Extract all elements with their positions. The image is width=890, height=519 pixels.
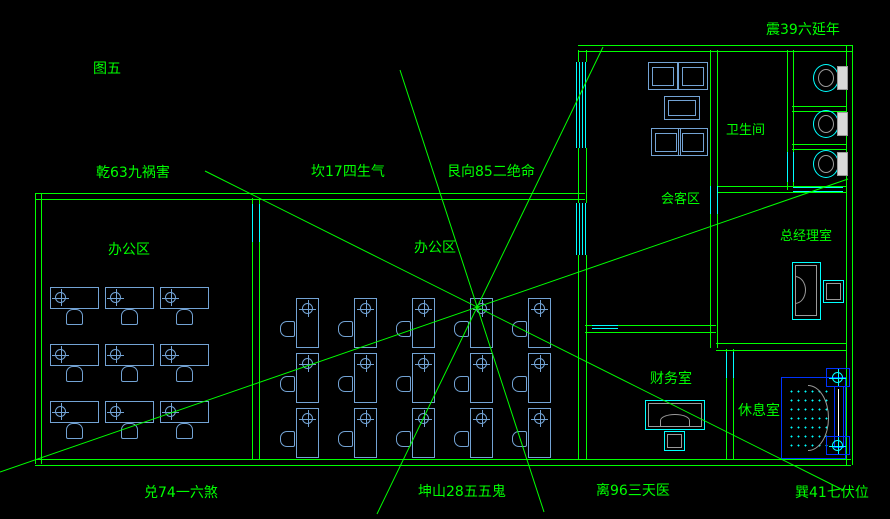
workstation-crosshair-icon: [302, 358, 313, 369]
workstation-crosshair-icon: [302, 413, 313, 424]
office-chair: [121, 423, 138, 439]
desk: [105, 344, 154, 366]
workstation-crosshair-icon: [418, 358, 429, 369]
workstation-crosshair-icon: [534, 358, 545, 369]
workstation-crosshair-icon: [360, 413, 371, 424]
wall-right-outer: [846, 45, 853, 465]
sofa-cushion: [682, 67, 704, 86]
window-meeting-bottom: [592, 325, 618, 331]
floorplan-canvas[interactable]: 图五 震39六延年 乾63九祸害 坎17四生气 艮向85二绝命 兑74一六煞 坤…: [0, 0, 890, 519]
plumbing-symbol-bottom: [826, 436, 850, 455]
direction-label-zhen: 震39六延年: [766, 21, 840, 39]
office-chair: [176, 423, 193, 439]
desk: [470, 298, 493, 348]
workstation-crosshair-icon: [302, 303, 313, 314]
wall-bottom-outer: [35, 459, 851, 466]
office-chair: [66, 423, 83, 439]
direction-label-kun: 坤山28五五鬼: [418, 483, 506, 501]
direction-label-li: 离96三天医: [596, 482, 670, 500]
room-label-meeting: 会客区: [661, 191, 700, 209]
office-chair: [512, 431, 527, 447]
workstation-crosshair-icon: [418, 303, 429, 314]
window-bathroom-bottom: [793, 187, 843, 192]
workstation-crosshair-icon: [360, 358, 371, 369]
office-chair: [66, 366, 83, 382]
office-chair: [121, 366, 138, 382]
gm-chair-seat: [826, 283, 841, 300]
sofa-cushion: [655, 133, 677, 152]
room-label-lounge: 休息室: [738, 402, 780, 420]
wall-left-outer: [35, 193, 42, 464]
toilet-tank: [837, 112, 848, 136]
desk: [296, 408, 319, 458]
room-label-office-left: 办公区: [108, 241, 150, 259]
direction-rays: [0, 0, 890, 519]
desk: [528, 353, 551, 403]
desk: [160, 287, 209, 309]
plumbing-symbol-top: [826, 368, 850, 387]
desk: [354, 353, 377, 403]
desk: [528, 298, 551, 348]
desk: [470, 353, 493, 403]
office-chair: [66, 309, 83, 325]
wall-stall-divider-2: [792, 144, 846, 150]
window-hall-divider: [576, 203, 587, 255]
workstation-crosshair-icon: [165, 349, 176, 360]
office-chair: [454, 376, 469, 392]
finance-chair-seat: [667, 434, 682, 448]
office-chair: [338, 376, 353, 392]
desk: [50, 287, 99, 309]
desk: [528, 408, 551, 458]
coffee-table: [664, 96, 700, 120]
office-chair: [280, 431, 295, 447]
direction-label-dui: 兑74一六煞: [144, 484, 218, 502]
gm-desk: [792, 262, 821, 320]
workstation-crosshair-icon: [55, 292, 66, 303]
office-chair: [280, 376, 295, 392]
desk: [354, 408, 377, 458]
room-label-finance: 财务室: [650, 370, 692, 388]
workstation-crosshair-icon: [55, 406, 66, 417]
workstation-crosshair-icon: [534, 303, 545, 314]
office-chair: [396, 321, 411, 337]
sofa-chair: [678, 128, 708, 156]
office-chair: [512, 321, 527, 337]
sofa-chair: [651, 128, 681, 156]
workstation-crosshair-icon: [418, 413, 429, 424]
room-label-office-main: 办公区: [414, 239, 456, 257]
toilet-tank: [837, 66, 848, 90]
direction-label-xun: 巽41七伏位: [795, 484, 869, 502]
workstation-crosshair-icon: [534, 413, 545, 424]
door-left-office: [252, 204, 260, 242]
direction-label-qian: 乾63九祸害: [96, 164, 170, 182]
desk: [160, 344, 209, 366]
office-chair: [396, 431, 411, 447]
toilet-tank: [837, 152, 848, 176]
sofa-chair: [648, 62, 678, 90]
office-chair: [454, 321, 469, 337]
crosshair-icon: [832, 372, 843, 383]
office-chair: [512, 376, 527, 392]
desk: [412, 298, 435, 348]
workstation-crosshair-icon: [110, 349, 121, 360]
coffee-table-top: [668, 100, 696, 116]
workstation-crosshair-icon: [476, 413, 487, 424]
workstation-crosshair-icon: [165, 406, 176, 417]
workstation-crosshair-icon: [110, 292, 121, 303]
sofa-cushion: [652, 67, 674, 86]
workstation-crosshair-icon: [110, 406, 121, 417]
desk: [50, 344, 99, 366]
office-chair: [338, 321, 353, 337]
figure-label: 图五: [93, 60, 121, 78]
desk: [296, 353, 319, 403]
desk: [105, 287, 154, 309]
room-label-bathroom: 卫生间: [726, 122, 765, 140]
workstation-crosshair-icon: [360, 303, 371, 314]
door-lounge: [726, 352, 734, 378]
crosshair-icon: [832, 440, 843, 451]
toilet-seat: [818, 155, 834, 173]
door-gm-office: [710, 186, 718, 214]
desk: [50, 401, 99, 423]
desk: [160, 401, 209, 423]
office-chair: [396, 376, 411, 392]
window-meeting-left: [576, 62, 587, 148]
desk: [412, 353, 435, 403]
toilet-seat: [818, 69, 834, 87]
office-chair: [338, 431, 353, 447]
workstation-crosshair-icon: [476, 303, 487, 314]
door-bathroom: [787, 152, 794, 182]
finance-desk: [645, 400, 705, 430]
office-chair: [280, 321, 295, 337]
wall-top-main: [35, 193, 585, 200]
office-chair: [176, 309, 193, 325]
sofa-chair: [678, 62, 708, 90]
finance-chair: [664, 431, 685, 451]
workstation-crosshair-icon: [55, 349, 66, 360]
office-chair: [454, 431, 469, 447]
sofa-cushion: [682, 133, 704, 152]
desk: [470, 408, 493, 458]
desk: [296, 298, 319, 348]
office-chair: [176, 366, 193, 382]
finance-desk-arc: [660, 414, 690, 427]
office-chair: [121, 309, 138, 325]
gm-chair: [823, 280, 844, 303]
toilet-seat: [818, 115, 834, 133]
desk: [354, 298, 377, 348]
room-label-gm-office: 总经理室: [780, 228, 832, 246]
workstation-crosshair-icon: [165, 292, 176, 303]
direction-label-kan: 坎17四生气: [311, 163, 385, 181]
direction-label-gen: 艮向85二绝命: [447, 163, 535, 181]
workstation-crosshair-icon: [476, 358, 487, 369]
wall-gm-bottom: [716, 343, 846, 351]
desk: [105, 401, 154, 423]
desk: [412, 408, 435, 458]
